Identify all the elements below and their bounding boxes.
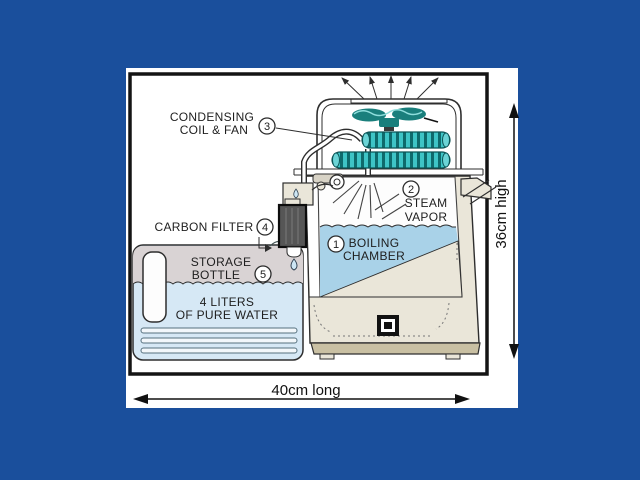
label-volume-line2: OF PURE WATER	[176, 308, 279, 322]
blue-background: CONDENSING COIL & FAN 3 2 STEAM VAPOR 1 …	[0, 0, 640, 480]
callout-number-4: 4	[262, 222, 268, 234]
label-steam-line2: VAPOR	[405, 210, 448, 224]
callout-number-1: 1	[333, 239, 339, 251]
coil-row-2	[332, 152, 450, 168]
coil-row-1	[362, 132, 450, 148]
coil-end-cap	[333, 153, 340, 167]
callout-number-2: 2	[408, 184, 414, 196]
machine-foot-left	[320, 354, 334, 359]
coil-end-cap	[443, 153, 450, 167]
label-storage-line1: STORAGE	[191, 255, 252, 269]
height-dimension-label: 36cm high	[493, 179, 510, 248]
power-button-core	[384, 322, 392, 329]
label-steam-line1: STEAM	[405, 196, 448, 210]
coil-end-cap	[443, 133, 450, 147]
label-boiling-line1: BOILING	[349, 236, 400, 250]
bottle-ridge	[141, 348, 297, 353]
bottle-ridge	[141, 328, 297, 333]
callout-number-5: 5	[260, 269, 266, 281]
label-volume-line1: 4 LITERS	[200, 295, 254, 309]
distiller-diagram: CONDENSING COIL & FAN 3 2 STEAM VAPOR 1 …	[0, 0, 640, 480]
coil-end-cap	[363, 133, 370, 147]
power-button	[377, 315, 399, 336]
label-boiling-line2: CHAMBER	[343, 249, 405, 263]
machine-base	[311, 343, 480, 354]
bottle-handle	[143, 252, 166, 322]
bottle-ridges	[141, 328, 297, 353]
length-dimension-label: 40cm long	[271, 382, 340, 399]
label-condensing-line2: COIL & FAN	[180, 123, 249, 137]
label-condensing-line1: CONDENSING	[170, 110, 254, 124]
label-carbon-filter: CARBON FILTER	[154, 220, 253, 234]
callout-number-3: 3	[264, 121, 270, 133]
label-storage-line2: BOTTLE	[192, 268, 240, 282]
mechanism-wheel	[330, 175, 344, 189]
machine-foot-right	[446, 354, 460, 359]
bottle-ridge	[141, 338, 297, 343]
fan-hub	[379, 118, 399, 127]
filter-spout	[287, 247, 301, 257]
